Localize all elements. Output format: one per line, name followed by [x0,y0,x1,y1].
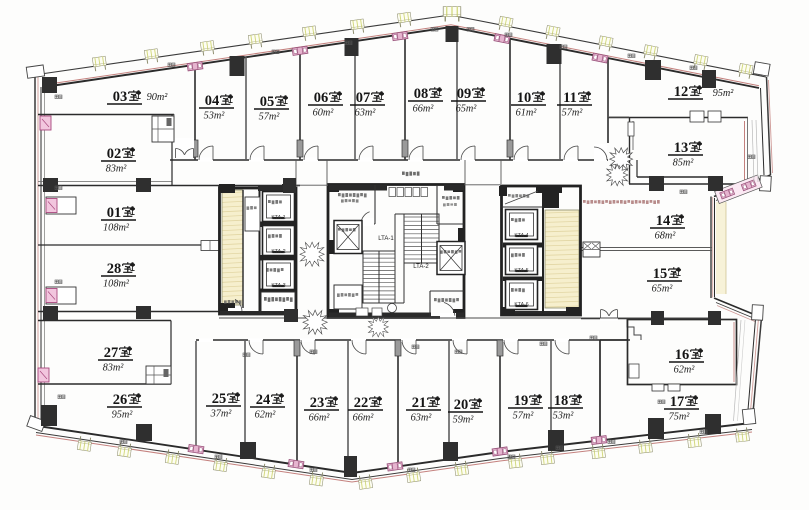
svg-text:37m²: 37m² [210,409,233,420]
svg-text:65m²: 65m² [652,284,674,295]
svg-text:21: 21 [412,395,427,411]
svg-text:25: 25 [212,391,227,407]
svg-text:14: 14 [656,213,671,229]
svg-text:15: 15 [653,266,668,282]
svg-text:26: 26 [113,392,128,408]
svg-text:KTA-6: KTA-6 [514,302,528,308]
svg-text:16: 16 [675,347,690,363]
svg-text:61m²: 61m² [516,108,538,119]
svg-text:63m²: 63m² [355,108,377,119]
svg-text:09: 09 [457,86,472,102]
svg-text:23: 23 [310,395,325,411]
svg-text:KTA-3: KTA-3 [271,283,285,289]
svg-text:03: 03 [113,89,128,105]
svg-text:66m²: 66m² [413,104,435,115]
svg-text:57m²: 57m² [562,108,584,119]
svg-text:95m²: 95m² [112,410,134,421]
svg-text:22: 22 [354,395,369,411]
svg-text:83m²: 83m² [106,164,128,175]
svg-text:63m²: 63m² [411,413,433,424]
svg-text:66m²: 66m² [353,413,375,424]
svg-text:07: 07 [356,90,371,106]
svg-text:28: 28 [107,261,122,277]
svg-text:02: 02 [107,146,122,162]
svg-text:LTA-2: LTA-2 [413,264,429,270]
svg-text:85m²: 85m² [673,158,695,169]
svg-text:10: 10 [517,90,532,106]
svg-text:17: 17 [670,394,685,410]
svg-text:60m²: 60m² [313,108,335,119]
svg-text:95m²: 95m² [713,88,735,99]
svg-text:13: 13 [674,140,689,156]
svg-text:62m²: 62m² [674,365,696,376]
svg-text:08: 08 [414,86,429,102]
svg-text:65m²: 65m² [456,104,478,115]
svg-text:04: 04 [205,93,220,109]
svg-text:27: 27 [104,345,119,361]
svg-text:66m²: 66m² [309,413,331,424]
svg-text:62m²: 62m² [255,410,277,421]
svg-text:108m²: 108m² [103,279,130,290]
svg-text:108m²: 108m² [103,223,130,234]
svg-text:24: 24 [256,392,271,408]
svg-text:06: 06 [314,90,329,106]
svg-text:90m²: 90m² [147,92,169,103]
svg-text:05: 05 [260,94,275,110]
svg-text:68m²: 68m² [655,231,677,242]
svg-text:83m²: 83m² [103,363,125,374]
svg-text:01: 01 [107,205,122,221]
svg-text:57m²: 57m² [259,112,281,123]
svg-text:KTA-4: KTA-4 [514,233,528,239]
svg-text:57m²: 57m² [513,411,535,422]
svg-text:59m²: 59m² [453,415,475,426]
svg-text:KTA-5: KTA-5 [514,268,528,274]
svg-text:LTA-1: LTA-1 [378,236,394,242]
svg-text:53m²: 53m² [553,411,575,422]
svg-text:20: 20 [454,397,469,413]
svg-text:18: 18 [554,393,569,409]
svg-text:19: 19 [514,393,529,409]
svg-text:KTA-2: KTA-2 [271,249,285,255]
svg-text:75m²: 75m² [669,412,691,423]
svg-text:12: 12 [674,84,689,100]
svg-text:11: 11 [563,90,577,106]
svg-text:KTA-1: KTA-1 [271,215,285,221]
svg-text:53m²: 53m² [204,111,226,122]
